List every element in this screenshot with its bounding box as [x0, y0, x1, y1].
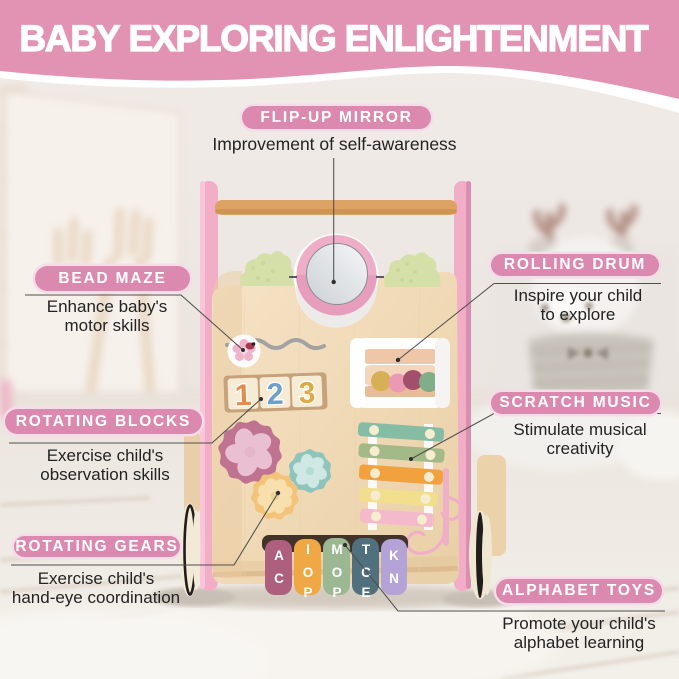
svg-text:C: C	[274, 571, 284, 586]
svg-text:T: T	[362, 542, 371, 557]
svg-text:P: P	[303, 585, 312, 600]
svg-text:O: O	[332, 565, 343, 580]
svg-text:M: M	[331, 542, 342, 557]
svg-text:K: K	[389, 548, 399, 563]
svg-text:P: P	[332, 585, 341, 600]
svg-text:3: 3	[298, 377, 316, 411]
svg-text:N: N	[389, 571, 399, 586]
svg-text:1: 1	[234, 379, 252, 413]
svg-text:E: E	[361, 585, 370, 600]
svg-text:A: A	[274, 548, 284, 563]
svg-text:2: 2	[266, 378, 284, 412]
svg-text:I: I	[306, 542, 310, 557]
svg-text:O: O	[303, 565, 314, 580]
